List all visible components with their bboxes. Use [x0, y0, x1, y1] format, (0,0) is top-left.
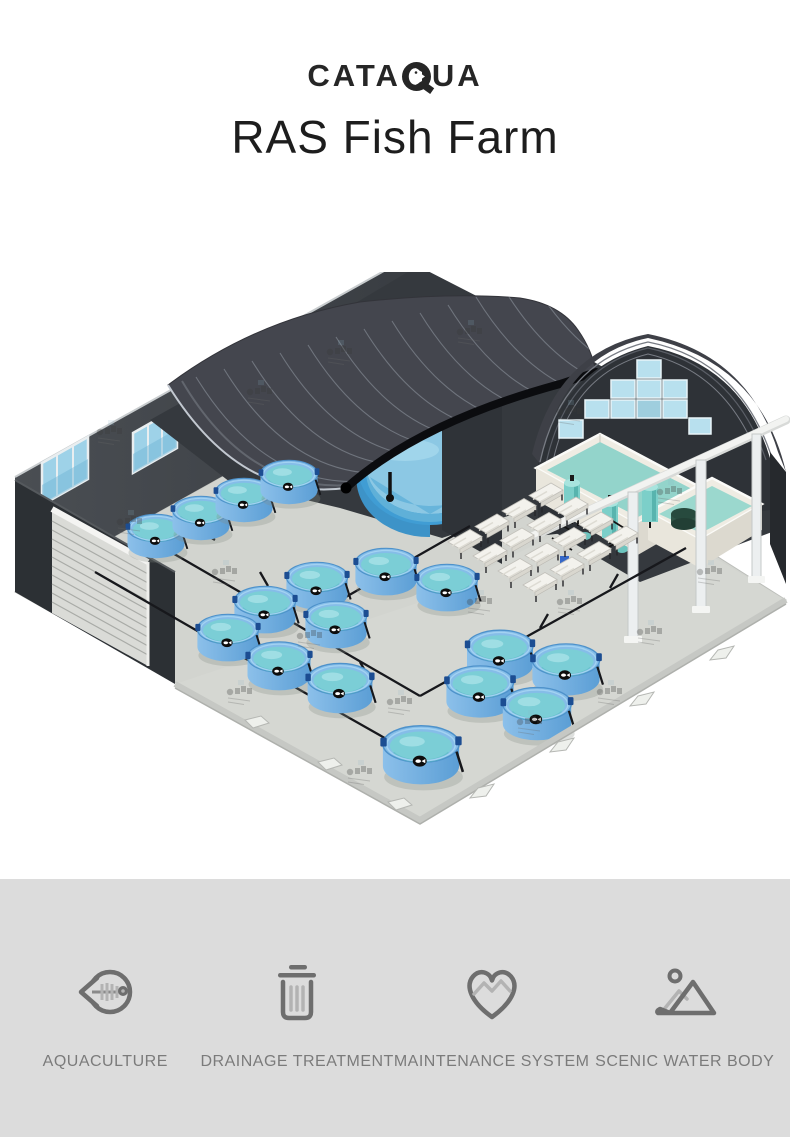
page-title: RAS Fish Farm [0, 110, 790, 164]
mountain-icon [652, 959, 718, 1023]
feature-drainage: DRAINAGE TREATMENT [201, 959, 394, 1137]
feature-label: AQUACULTURE [43, 1053, 168, 1071]
brand-text-prefix: CATA [307, 58, 401, 94]
feature-label: SCENIC WATER BODY [595, 1053, 774, 1071]
feature-maintenance: MAINTENANCE SYSTEM [394, 959, 590, 1137]
secondary-side-wall [770, 452, 786, 584]
trash-icon [265, 959, 329, 1023]
brand-text-suffix: UA [432, 58, 483, 94]
fish-tank [259, 460, 321, 508]
heart-pulse-icon [459, 959, 525, 1023]
feature-label: MAINTENANCE SYSTEM [394, 1053, 590, 1071]
product-page: CATAUA RAS Fish Farm [0, 0, 790, 1137]
feature-bar: AQUACULTURE DRAINAGE TREATMENT MAINT [0, 879, 790, 1137]
fish-icon [72, 959, 138, 1023]
fish-tank [245, 642, 313, 695]
feature-label: DRAINAGE TREATMENT [201, 1053, 394, 1071]
fish-tank [380, 726, 463, 791]
ras-farm-svg [0, 272, 790, 832]
feature-scenic: SCENIC WATER BODY [590, 959, 781, 1137]
logo-q-fish-icon [402, 62, 431, 91]
brand-logo: CATAUA [0, 58, 790, 94]
degasser-tank [671, 508, 697, 530]
fish-tank [353, 548, 419, 600]
ras-farm-illustration [0, 272, 790, 832]
feature-aquaculture: AQUACULTURE [10, 959, 201, 1137]
fish-tank [305, 663, 375, 718]
